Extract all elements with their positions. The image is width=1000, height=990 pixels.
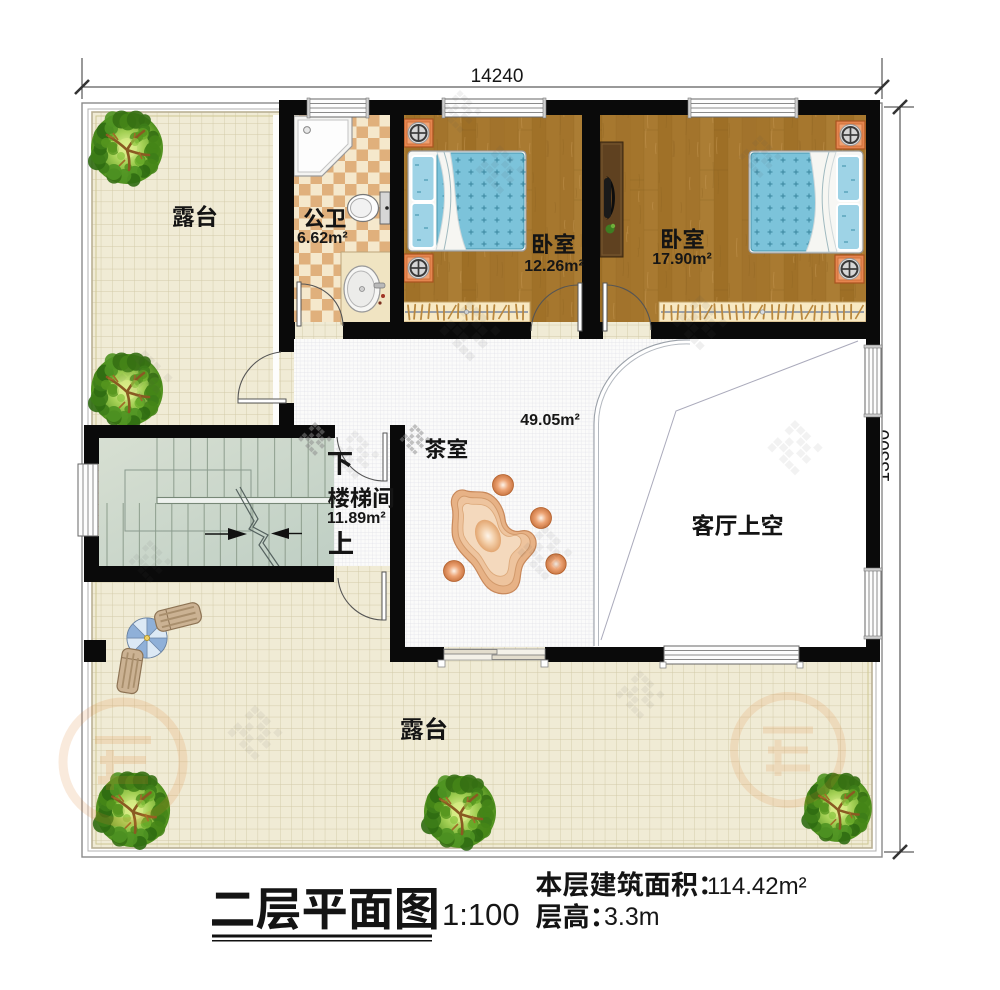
svg-text:17.90m²: 17.90m² [652, 251, 712, 268]
svg-text:1:100: 1:100 [442, 897, 520, 932]
svg-text:14240: 14240 [471, 66, 524, 87]
svg-text:6.62m²: 6.62m² [297, 230, 348, 247]
svg-text:11.89m²: 11.89m² [327, 510, 386, 527]
svg-text:12.26m²: 12.26m² [524, 258, 584, 275]
svg-text:49.05m²: 49.05m² [520, 412, 580, 429]
svg-text:114.42m²: 114.42m² [707, 873, 807, 900]
svg-text:3.3m: 3.3m [604, 903, 660, 931]
